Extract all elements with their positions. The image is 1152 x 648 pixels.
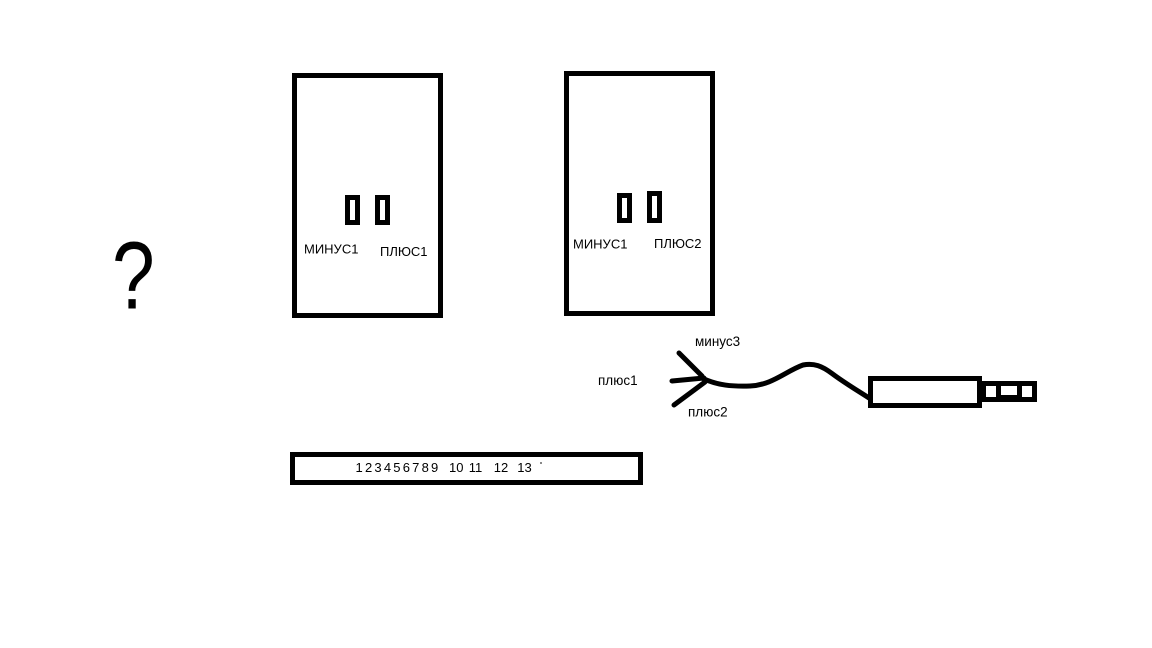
svg-text:12: 12: [494, 460, 508, 475]
svg-text:МИНУС1: МИНУС1: [573, 237, 627, 252]
svg-text:10: 10: [449, 460, 463, 475]
svg-text:ПЛЮС2: ПЛЮС2: [654, 236, 701, 251]
svg-text:13: 13: [517, 460, 531, 475]
svg-text:1 2 3 4 5 6 7 8 9: 1 2 3 4 5 6 7 8 9: [356, 460, 439, 475]
svg-text:МИНУС1: МИНУС1: [304, 242, 358, 257]
svg-text:ПЛЮС1: ПЛЮС1: [380, 244, 427, 259]
svg-text:11: 11: [469, 460, 483, 475]
svg-text:?: ?: [112, 222, 155, 329]
svg-text:минус3: минус3: [695, 334, 740, 349]
svg-text:плюс1: плюс1: [598, 373, 638, 388]
svg-text:плюс2: плюс2: [688, 405, 728, 420]
